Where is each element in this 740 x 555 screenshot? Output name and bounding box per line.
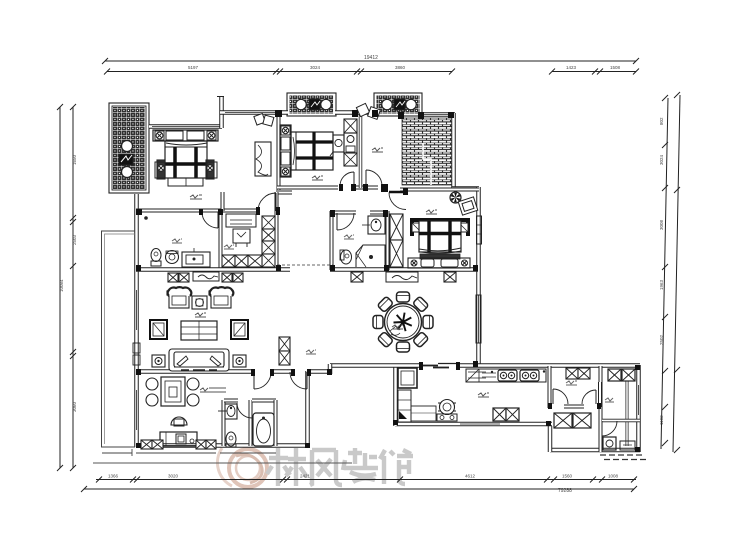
svg-text:3020: 3020 xyxy=(168,474,179,479)
svg-text:10084: 10084 xyxy=(59,279,64,292)
svg-text:1560: 1560 xyxy=(562,474,573,479)
svg-text:3860: 3860 xyxy=(395,65,406,70)
svg-text:802: 802 xyxy=(659,117,664,125)
svg-text:1102: 1102 xyxy=(659,415,664,425)
svg-text:1508: 1508 xyxy=(610,65,621,70)
svg-text:1963: 1963 xyxy=(659,279,664,290)
svg-text:2503: 2503 xyxy=(72,234,77,245)
svg-text:4612: 4612 xyxy=(465,474,476,479)
svg-text:1423: 1423 xyxy=(566,65,577,70)
svg-text:3008: 3008 xyxy=(659,219,664,230)
svg-text:1366: 1366 xyxy=(108,474,119,479)
svg-text:2502: 2502 xyxy=(659,334,664,345)
svg-text:1650: 1650 xyxy=(72,154,77,165)
svg-text:2421: 2421 xyxy=(300,474,311,479)
svg-text:3024: 3024 xyxy=(310,65,321,70)
svg-text:79288: 79288 xyxy=(558,488,572,494)
svg-text:19412: 19412 xyxy=(364,55,378,61)
svg-text:3024: 3024 xyxy=(659,154,664,165)
svg-text:5197: 5197 xyxy=(188,65,199,70)
svg-text:3060: 3060 xyxy=(72,401,77,412)
svg-text:1008: 1008 xyxy=(608,474,619,479)
